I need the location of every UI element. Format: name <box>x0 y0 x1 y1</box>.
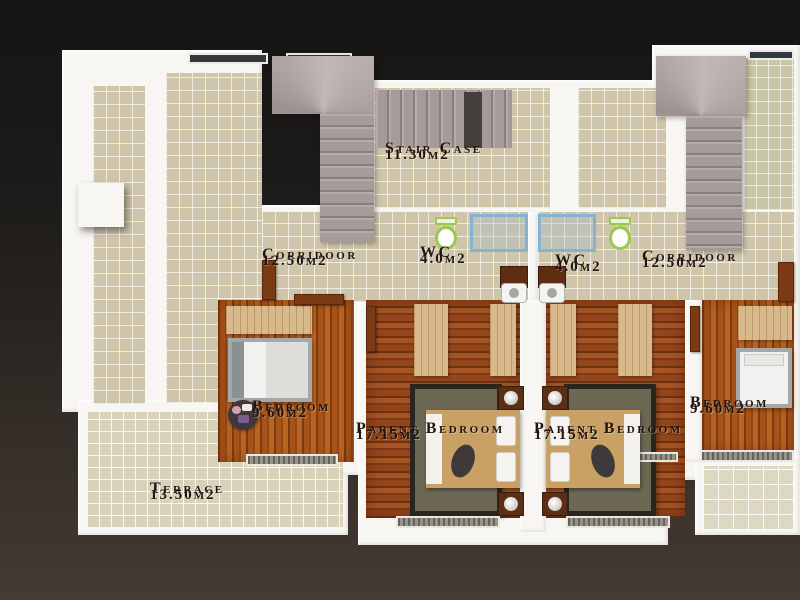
window-bedroom-left <box>246 454 338 466</box>
staircase-right-landing <box>656 56 746 116</box>
skylight-window-right <box>748 50 794 60</box>
window-parent-left <box>396 516 500 528</box>
party-wall-wc <box>528 212 538 302</box>
door-corridor-right-side <box>778 262 794 302</box>
room-area: 17.15m2 <box>534 427 600 444</box>
decor-item-white <box>242 404 252 411</box>
door-bedroom-left <box>294 294 344 305</box>
single-bed-left <box>228 338 312 402</box>
clothes-on-bed <box>447 441 479 480</box>
bed-blanket <box>266 342 308 398</box>
closet-parent-left-2 <box>490 304 516 376</box>
room-area: 4.0m2 <box>555 259 602 276</box>
chimney-box <box>78 183 124 227</box>
bed-headboard <box>232 342 244 398</box>
clothes-on-bed <box>587 441 619 480</box>
nightstand-left-top <box>498 386 524 410</box>
door-jamb-parent-right <box>690 306 700 352</box>
right-upper-corridor-floor <box>744 58 794 210</box>
skylight-window-1 <box>188 53 268 64</box>
tiled-strip-left <box>93 86 145 404</box>
decor-item-pink <box>232 406 241 414</box>
room-area: 12.50m2 <box>262 253 328 270</box>
wardrobe-left <box>226 306 312 334</box>
nightstand-left-bottom <box>498 492 524 516</box>
room-area: 12.50m2 <box>642 255 708 272</box>
room-area: 11.30m2 <box>385 147 450 164</box>
sink-left <box>501 283 527 303</box>
bed-pillow <box>550 452 570 482</box>
decor-item-purple <box>238 415 249 423</box>
room-area: 13.50m2 <box>150 487 216 504</box>
toilet-tank <box>435 217 457 225</box>
wardrobe-right <box>738 306 792 340</box>
nightstand-right-top <box>542 386 568 410</box>
shower-left <box>470 214 528 252</box>
window-bedroom-right <box>700 450 794 462</box>
staircase-left-landing <box>272 56 374 114</box>
staircase-left-flight <box>320 114 374 242</box>
room-area: 4.0m2 <box>420 251 467 268</box>
upper-corridor-floor <box>578 88 666 208</box>
closet-parent-right-1 <box>618 304 652 376</box>
room-area: 17.15m2 <box>356 427 422 444</box>
terrace-right-floor <box>703 466 794 530</box>
closet-parent-left-1 <box>414 304 448 376</box>
bed-pillow <box>496 452 516 482</box>
room-area: 9.60m2 <box>690 401 746 418</box>
toilet-tank <box>609 217 631 225</box>
shower-right <box>538 214 596 252</box>
toilet-bowl <box>609 226 631 250</box>
room-area: 9.60m2 <box>252 405 308 422</box>
toilet-right <box>607 217 633 251</box>
nightstand-right-bottom <box>542 492 568 516</box>
sink-right <box>539 283 565 303</box>
door-jamb-parent-left <box>366 306 376 352</box>
closet-parent-right-2 <box>550 304 576 376</box>
floor-plan-stage: Stair Case 11.30m2 Corridoor 12.50m2 WC … <box>0 0 800 600</box>
staircase-right-flight <box>686 116 742 250</box>
bed-pillow <box>744 354 784 366</box>
window-parent-right <box>566 516 670 528</box>
